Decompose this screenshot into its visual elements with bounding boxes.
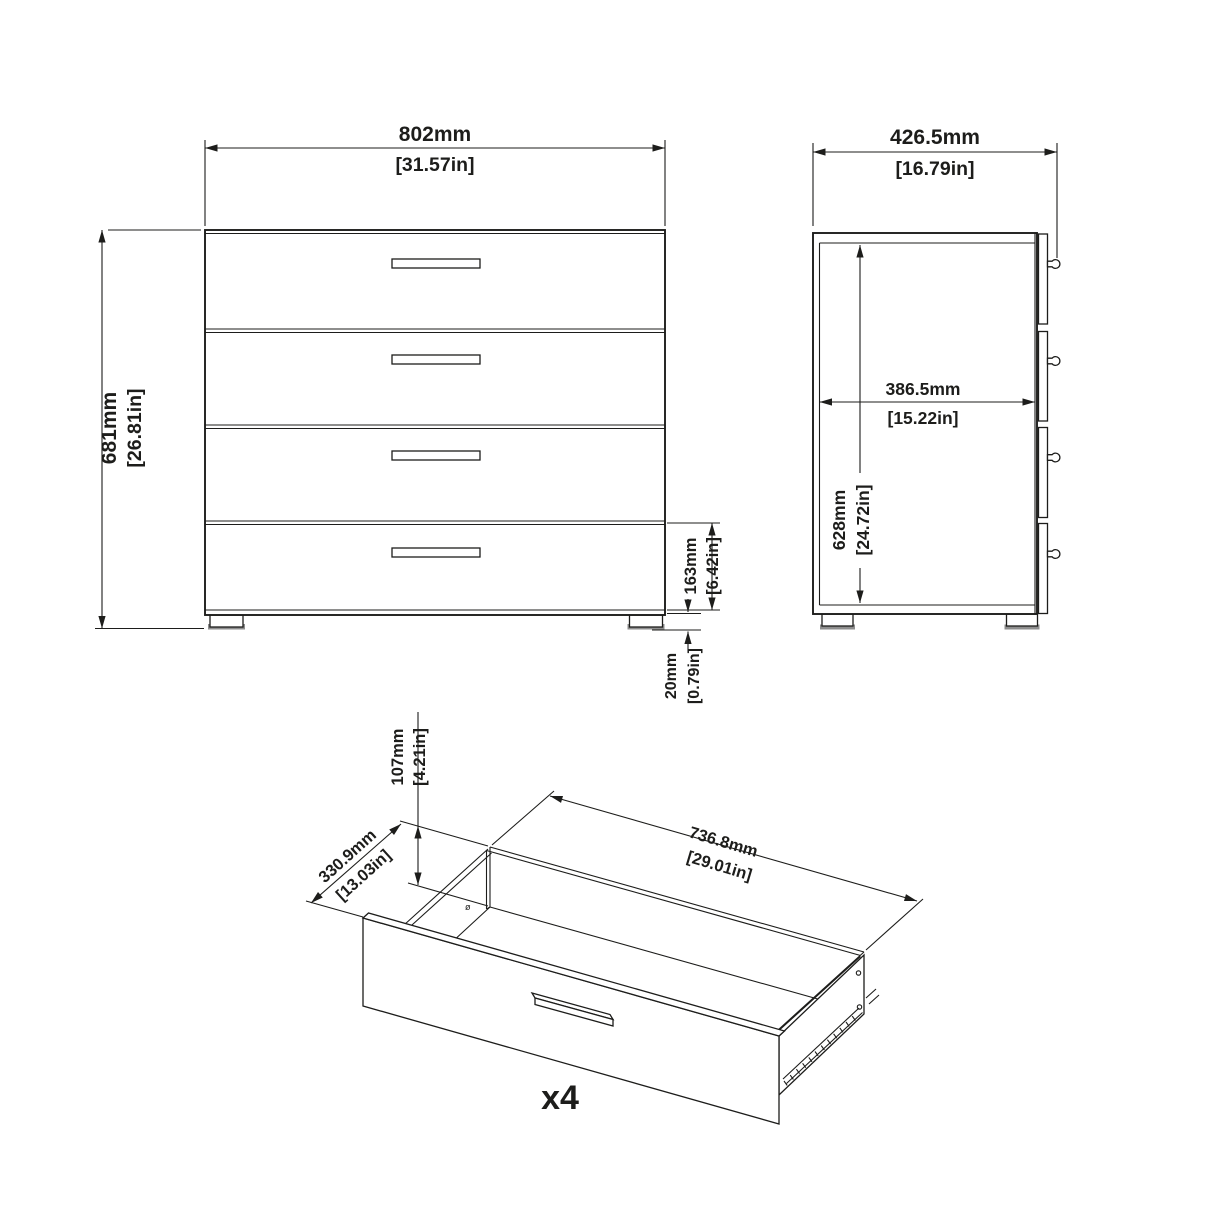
front-drawer-height-mm-label: 163mm <box>682 538 700 595</box>
front-drawer1-handle <box>392 259 480 268</box>
side-interior-height-mm-label: 628mm <box>829 490 849 550</box>
front-drawer4-handle <box>392 548 480 557</box>
side-interior-depth-mm-label: 386.5mm <box>886 379 961 399</box>
front-left-foot <box>210 615 243 627</box>
front-height-dimension: 681mm [26.81in] <box>95 230 204 629</box>
front-height-mm-label: 681mm <box>98 392 121 464</box>
drawer-right-end-panel <box>779 955 864 1095</box>
drawer-slide-rail-bracket <box>866 989 879 1004</box>
drawer-inner-height-mm-label: 107mm <box>389 729 407 786</box>
drawer-isometric-view: ø 107mm [4.21in] 330.9mm [13.03in] <box>306 712 923 1124</box>
side-drawer4-front-edge <box>1039 524 1048 614</box>
side-right-foot <box>1007 614 1038 626</box>
drawer-inner-height-in-label: [4.21in] <box>411 728 429 786</box>
technical-drawing-page: 802mm [31.57in] 681mm [26.81in] 163mm [6… <box>0 0 1214 1214</box>
side-depth-mm-label: 426.5mm <box>890 126 980 149</box>
front-width-dimension: 802mm [31.57in] <box>205 123 665 226</box>
front-width-extension-lines <box>205 140 665 226</box>
front-drawer-height-dimension: 163mm [6.42in] <box>667 523 722 610</box>
side-drawer3-knob <box>1048 453 1060 462</box>
drawer-quantity-label: x4 <box>541 1079 579 1117</box>
front-width-mm-label: 802mm <box>399 123 471 146</box>
front-foot-height-in-label: [0.79in] <box>686 648 703 704</box>
front-drawer3-handle <box>392 451 480 460</box>
side-drawer3-front-edge <box>1039 428 1048 518</box>
side-drawer4-knob <box>1048 550 1060 559</box>
side-view: 426.5mm [16.79in] 386.5mm [15.22in] 628m… <box>813 126 1060 630</box>
side-interior-depth-in-label: [15.22in] <box>888 408 959 428</box>
front-drawer2-handle <box>392 355 480 364</box>
side-drawer2-knob <box>1048 357 1060 366</box>
side-interior-height-in-label: [24.72in] <box>853 485 873 556</box>
side-drawer2-front-edge <box>1039 332 1048 422</box>
front-height-in-label: [26.81in] <box>124 388 146 467</box>
side-drawer1-knob <box>1048 260 1060 269</box>
side-depth-in-label: [16.79in] <box>895 158 974 180</box>
front-drawer-height-in-label: [6.42in] <box>704 537 722 595</box>
drawer-inner-height-extension-lines <box>400 821 488 906</box>
side-left-foot <box>822 614 853 626</box>
front-right-foot <box>630 615 663 627</box>
dresser-dimension-drawing: 802mm [31.57in] 681mm [26.81in] 163mm [6… <box>0 0 1214 1214</box>
front-view: 802mm [31.57in] 681mm [26.81in] 163mm [6… <box>95 123 722 704</box>
drawer-depth-dimension: 330.9mm [13.03in] <box>306 824 401 917</box>
side-drawer1-front-edge <box>1039 234 1048 324</box>
front-foot-height-mm-label: 20mm <box>663 653 680 699</box>
front-width-in-label: [31.57in] <box>395 154 474 176</box>
drawer-depth-extension-line <box>306 901 363 917</box>
drawer-inner-height-dimension: 107mm [4.21in] <box>389 712 488 906</box>
drawer-back-screw-mark: ø <box>465 902 471 912</box>
